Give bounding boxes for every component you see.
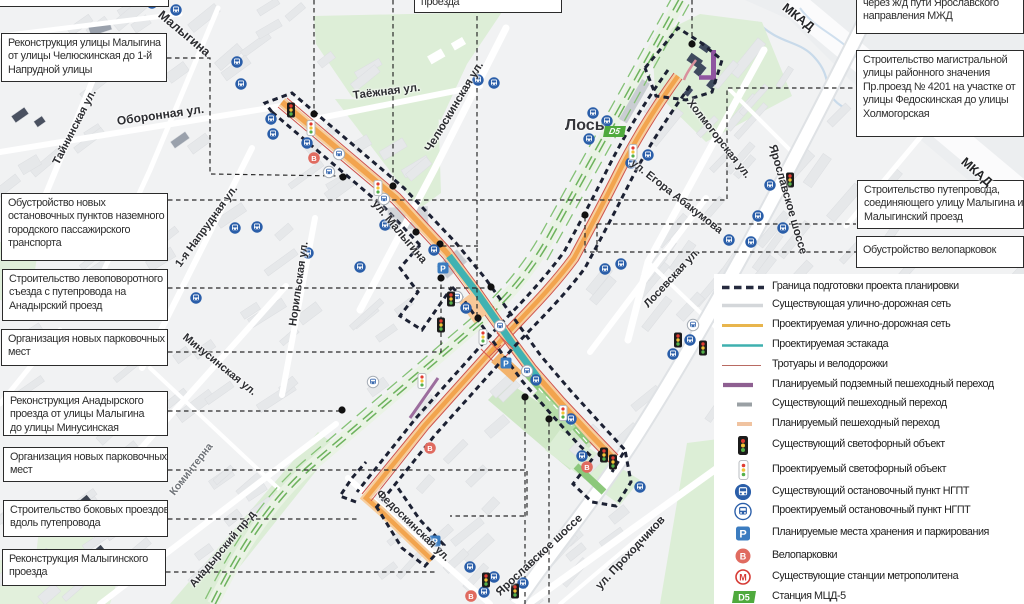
svg-text:D5: D5 <box>738 593 750 603</box>
svg-text:М: М <box>739 572 747 582</box>
svg-text:P: P <box>739 529 746 541</box>
svg-text:В: В <box>740 552 747 562</box>
